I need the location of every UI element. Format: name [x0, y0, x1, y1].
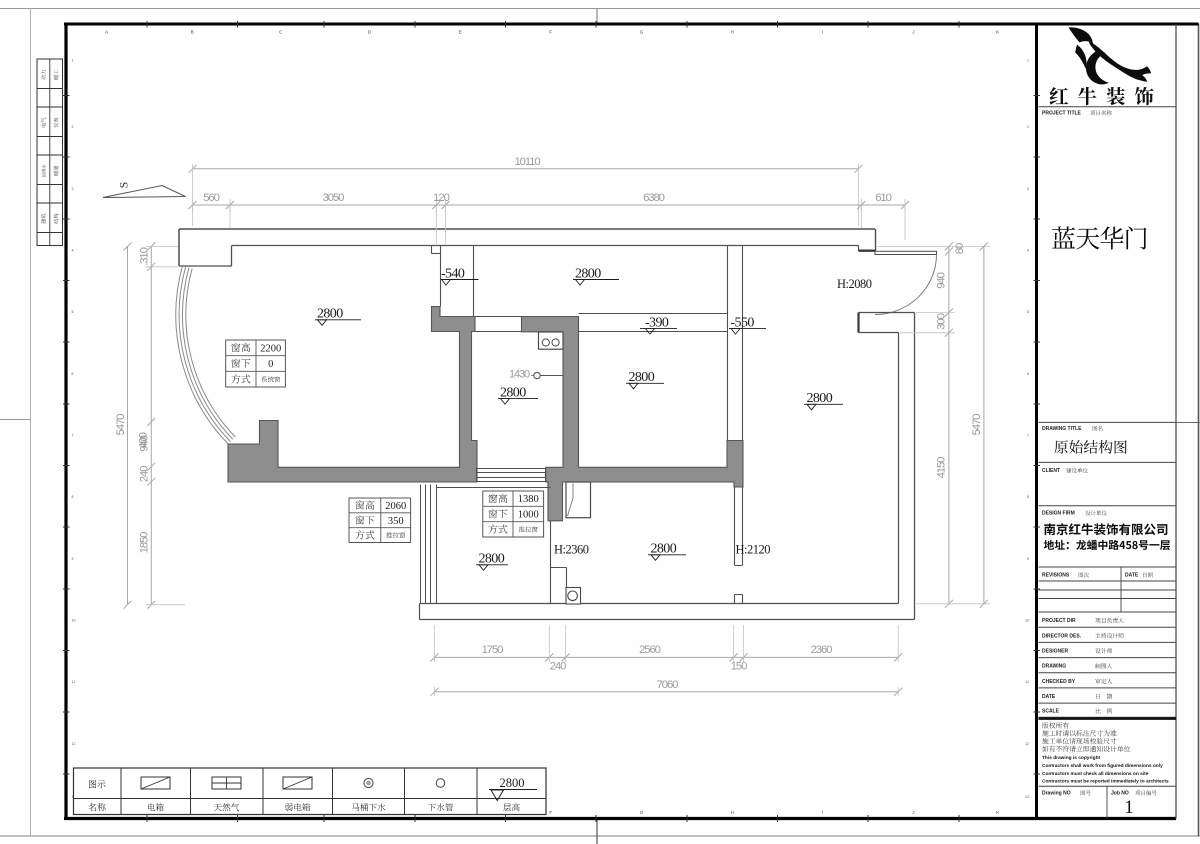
svg-text:300: 300 [936, 313, 948, 329]
svg-text:2560: 2560 [639, 644, 661, 656]
svg-text:PROJECT DIR: PROJECT DIR [1042, 618, 1076, 624]
svg-text:610: 610 [875, 192, 891, 204]
svg-text:F: F [549, 810, 552, 815]
svg-text:5: 5 [1027, 310, 1029, 314]
svg-text:6: 6 [1027, 372, 1029, 376]
svg-text:6: 6 [72, 372, 74, 376]
svg-text:DESIGNER: DESIGNER [1042, 649, 1069, 655]
svg-text:CLIENT: CLIENT [1042, 468, 1060, 474]
svg-text:1: 1 [72, 59, 74, 63]
svg-text:10: 10 [72, 619, 76, 623]
svg-text:A: A [105, 30, 108, 35]
svg-text:1000: 1000 [518, 510, 539, 521]
svg-text:10110: 10110 [514, 156, 540, 168]
svg-text:2200: 2200 [260, 343, 281, 354]
svg-text:H:2360: H:2360 [554, 543, 589, 557]
svg-text:7: 7 [1027, 434, 1029, 438]
svg-text:9: 9 [72, 557, 74, 561]
svg-text:J: J [912, 810, 914, 815]
svg-text:DATE: DATE [1125, 573, 1139, 579]
svg-text:DIRECTOR DES.: DIRECTOR DES. [1042, 633, 1082, 639]
svg-text:DRAWING TITLE: DRAWING TITLE [1042, 426, 1082, 432]
svg-text:0: 0 [268, 359, 273, 370]
svg-text:3: 3 [72, 187, 74, 191]
svg-text:D: D [368, 30, 371, 35]
svg-text:11: 11 [72, 680, 76, 684]
svg-text:Job NO: Job NO [1111, 791, 1129, 797]
svg-text:REVISIONS: REVISIONS [1042, 573, 1070, 579]
svg-text:240: 240 [550, 661, 566, 673]
svg-text:K: K [996, 30, 999, 35]
svg-text:9: 9 [1027, 557, 1029, 561]
svg-text:13: 13 [1025, 795, 1029, 799]
svg-text:2360: 2360 [811, 644, 833, 656]
svg-text:4150: 4150 [936, 457, 948, 479]
svg-text:Contractors shall work from fi: Contractors shall work from figured dime… [1042, 763, 1163, 769]
svg-text:PROJECT TITLE: PROJECT TITLE [1042, 111, 1082, 117]
svg-text:2800: 2800 [500, 776, 525, 790]
svg-text:C: C [279, 30, 282, 35]
svg-text:7060: 7060 [657, 679, 679, 691]
svg-text:11: 11 [1025, 680, 1029, 684]
svg-text:150: 150 [731, 661, 747, 673]
svg-text:2060: 2060 [385, 501, 406, 512]
svg-text:B: B [191, 30, 194, 35]
svg-text:1850: 1850 [139, 532, 151, 554]
svg-text:12: 12 [1025, 742, 1029, 746]
svg-text:5: 5 [72, 310, 74, 314]
svg-text:560: 560 [203, 192, 219, 204]
svg-text:5470: 5470 [115, 414, 127, 436]
svg-text:DATE: DATE [1042, 694, 1056, 700]
svg-text:1430: 1430 [509, 369, 530, 381]
svg-text:3: 3 [1027, 187, 1029, 191]
svg-text:120: 120 [433, 192, 449, 204]
svg-text:940: 940 [936, 272, 948, 288]
svg-text:J: J [912, 30, 914, 35]
svg-text:1: 1 [1124, 797, 1134, 818]
svg-text:.310: .310 [139, 247, 151, 265]
svg-text:2: 2 [1027, 125, 1029, 129]
svg-text:I: I [822, 30, 823, 35]
svg-text:F: F [549, 30, 552, 35]
svg-text:DESIGN FIRM: DESIGN FIRM [1042, 511, 1075, 517]
svg-text:240: 240 [139, 466, 151, 482]
svg-text:1380: 1380 [518, 494, 539, 505]
svg-text:S: S [117, 182, 131, 189]
svg-text:SCALE: SCALE [1042, 709, 1060, 715]
svg-text:I: I [822, 810, 823, 815]
svg-text:This drawing is copyright: This drawing is copyright [1042, 755, 1101, 761]
svg-text:1750: 1750 [482, 644, 504, 656]
svg-text:K: K [996, 810, 999, 815]
svg-text:8: 8 [1027, 495, 1029, 499]
svg-text:400: 400 [138, 432, 150, 448]
svg-text:6380: 6380 [643, 192, 665, 204]
svg-text:350: 350 [388, 516, 404, 527]
svg-text:Contractors must check all dim: Contractors must check all dimensions on… [1042, 771, 1149, 777]
svg-text:5470: 5470 [971, 414, 983, 436]
svg-text:H:2120: H:2120 [736, 543, 771, 557]
svg-text:CHECKED BY: CHECKED BY [1042, 679, 1076, 685]
svg-text:1: 1 [1027, 59, 1029, 63]
svg-text:Contractors must be reported i: Contractors must be reported immediately… [1042, 779, 1169, 785]
svg-text:H: H [731, 810, 734, 815]
svg-text:DRAWING: DRAWING [1042, 664, 1066, 670]
svg-text:80: 80 [954, 243, 966, 254]
svg-text:H: H [731, 30, 734, 35]
svg-text:Drawing NO: Drawing NO [1042, 791, 1071, 797]
svg-text:4: 4 [72, 249, 74, 253]
svg-text:2: 2 [72, 125, 74, 129]
svg-text:7: 7 [72, 434, 74, 438]
svg-text:H:2080: H:2080 [837, 277, 872, 291]
svg-text:4: 4 [1027, 249, 1029, 253]
svg-text:8: 8 [72, 495, 74, 499]
svg-text:3050: 3050 [323, 192, 345, 204]
svg-text:12: 12 [72, 742, 76, 746]
svg-text:10: 10 [1025, 619, 1029, 623]
svg-text:E: E [459, 30, 462, 35]
